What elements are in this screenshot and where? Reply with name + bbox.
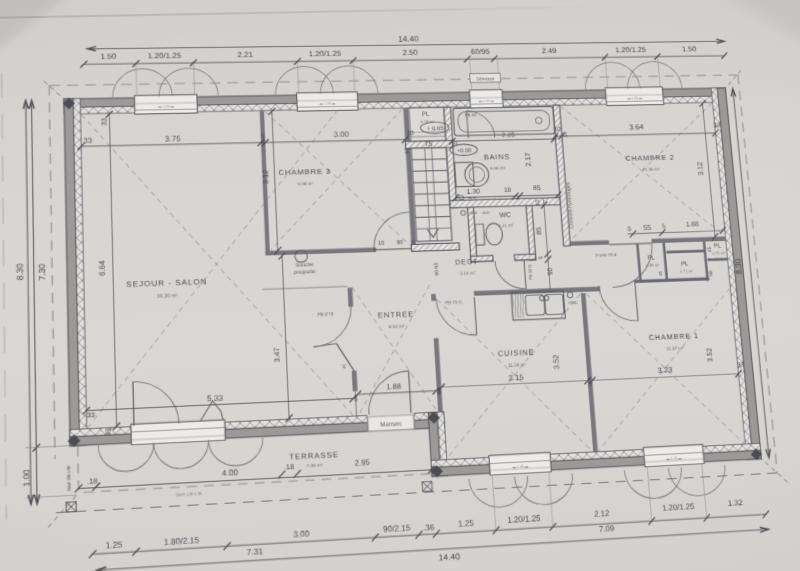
- svg-text:wch: wch: [482, 210, 490, 215]
- svg-text:10: 10: [504, 187, 512, 194]
- svg-text:8.30: 8.30: [14, 263, 25, 280]
- svg-text:2.12: 2.12: [594, 509, 610, 519]
- svg-text:▬ 1.05 ▬: ▬ 1.05 ▬: [479, 99, 495, 103]
- svg-text:SEJOUR - SALON: SEJOUR - SALON: [126, 277, 207, 289]
- svg-text:▬ 1.05 ▬: ▬ 1.05 ▬: [666, 456, 682, 461]
- svg-text:DEGT: DEGT: [455, 259, 478, 267]
- svg-text:10: 10: [378, 240, 385, 246]
- svg-text:40: 40: [658, 271, 663, 277]
- svg-text:7.30: 7.30: [36, 263, 47, 280]
- svg-text:10: 10: [411, 239, 417, 245]
- svg-text:45: 45: [342, 363, 347, 369]
- svg-text:60 63: 60 63: [434, 263, 441, 276]
- svg-text:33: 33: [83, 136, 92, 145]
- svg-text:3.00: 3.00: [333, 130, 349, 139]
- svg-text:PB 2'73: PB 2'73: [317, 311, 334, 317]
- svg-text:+0.00: +0.00: [457, 148, 472, 154]
- svg-text:5: 5: [539, 256, 545, 259]
- svg-text:PL: PL: [714, 243, 722, 250]
- svg-text:2.49: 2.49: [542, 47, 558, 55]
- svg-text:33: 33: [101, 118, 108, 126]
- svg-text:75: 75: [424, 139, 433, 148]
- svg-text:85: 85: [533, 185, 541, 192]
- svg-text:▬ 1.05 ▬: ▬ 1.05 ▬: [627, 96, 643, 100]
- svg-text:2.95: 2.95: [354, 457, 370, 467]
- svg-text:10: 10: [563, 131, 569, 137]
- svg-text:10: 10: [404, 148, 410, 154]
- svg-text:3.12: 3.12: [261, 170, 271, 184]
- svg-text:10: 10: [554, 126, 562, 133]
- svg-text:9.36 m²: 9.36 m²: [297, 181, 314, 186]
- svg-text:90/2.15: 90/2.15: [383, 523, 411, 534]
- svg-text:Mansec: Mansec: [380, 420, 402, 428]
- svg-text:5.33: 5.33: [207, 393, 224, 403]
- svg-text:11.37 m²: 11.37 m²: [666, 346, 684, 352]
- svg-text:55: 55: [643, 223, 652, 232]
- svg-text:2.21: 2.21: [237, 50, 253, 59]
- svg-text:1.20/1.25: 1.20/1.25: [615, 46, 647, 55]
- svg-text:5: 5: [354, 396, 358, 403]
- svg-text:ENTREE: ENTREE: [378, 310, 415, 320]
- svg-text:▬ 1.05 ▬: ▬ 1.05 ▬: [320, 102, 336, 106]
- svg-text:10: 10: [451, 140, 459, 147]
- svg-text:0.38 m²: 0.38 m²: [420, 119, 435, 124]
- svg-text:1.50: 1.50: [682, 45, 697, 53]
- svg-text:3.14 m²: 3.14 m²: [460, 271, 476, 276]
- svg-text:PB 63 G: PB 63 G: [527, 264, 533, 280]
- svg-text:0.49 m²: 0.49 m²: [646, 263, 661, 268]
- svg-text:2.25: 2.25: [501, 132, 515, 139]
- svg-text:33: 33: [105, 428, 113, 436]
- svg-text:1.32: 1.32: [727, 498, 743, 508]
- svg-text:.18: .18: [284, 464, 295, 472]
- svg-text:1.25: 1.25: [106, 540, 124, 551]
- svg-text:11.09 m²: 11.09 m²: [508, 362, 527, 368]
- svg-text:14.40: 14.40: [438, 551, 461, 563]
- svg-text:0.71 m²: 0.71 m²: [712, 250, 726, 255]
- svg-text:BAINS: BAINS: [484, 152, 511, 161]
- svg-text:1.68: 1.68: [686, 221, 700, 228]
- svg-text:1.00: 1.00: [22, 469, 32, 487]
- svg-text:3.52: 3.52: [551, 355, 561, 370]
- svg-text:7.31: 7.31: [247, 547, 264, 558]
- svg-text:PB 63: PB 63: [465, 113, 478, 118]
- svg-text:.18: .18: [87, 478, 98, 486]
- svg-text:+ 0.65: + 0.65: [427, 125, 445, 132]
- svg-text:Seuil 136 x 36: Seuil 136 x 36: [66, 466, 71, 490]
- svg-text:3.23: 3.23: [657, 365, 673, 374]
- svg-text:CHAMBRE 2: CHAMBRE 2: [625, 153, 675, 163]
- svg-text:33: 33: [713, 122, 721, 129]
- svg-text:poujoulat: poujoulat: [294, 269, 316, 276]
- svg-text:60/95: 60/95: [471, 48, 491, 57]
- svg-text:3.52: 3.52: [705, 348, 715, 363]
- svg-text:CUISINE: CUISINE: [498, 348, 535, 358]
- svg-text:90: 90: [547, 267, 554, 275]
- svg-text:36.36 m²: 36.36 m²: [157, 293, 178, 300]
- svg-text:8.30: 8.30: [733, 258, 744, 274]
- svg-text:Seuil: 136 x 36: Seuil: 136 x 36: [175, 492, 202, 498]
- svg-text:Détresse: Détresse: [476, 76, 495, 81]
- svg-text:4.00: 4.00: [222, 468, 239, 478]
- svg-text:3.75: 3.75: [165, 134, 182, 143]
- svg-text:▬ 1.05 ▬: ▬ 1.05 ▬: [158, 104, 175, 108]
- svg-text:1.25: 1.25: [458, 518, 475, 528]
- svg-text:TERRASSE: TERRASSE: [289, 450, 339, 462]
- svg-text:Cloisons hydrofuges: Cloisons hydrofuges: [566, 182, 575, 229]
- svg-text:2.17: 2.17: [523, 153, 533, 167]
- svg-text:1.20/1.25: 1.20/1.25: [309, 49, 342, 58]
- svg-text:1.20/1.25: 1.20/1.25: [507, 514, 541, 525]
- svg-text:3.64: 3.64: [629, 123, 645, 132]
- svg-text:▬ 1.05 ▬: ▬ 1.05 ▬: [512, 464, 529, 469]
- svg-text:5: 5: [438, 388, 442, 395]
- svg-text:3.12: 3.12: [695, 162, 705, 176]
- svg-text:50: 50: [708, 271, 714, 277]
- svg-text:10: 10: [534, 199, 541, 206]
- svg-text:10: 10: [407, 130, 415, 137]
- svg-text:CHAMBRE 3: CHAMBRE 3: [278, 167, 331, 177]
- svg-text:85: 85: [536, 227, 543, 235]
- svg-text:3.15: 3.15: [508, 373, 524, 383]
- svg-text:1.30: 1.30: [466, 189, 480, 196]
- svg-text:1.50: 1.50: [100, 52, 117, 61]
- svg-text:2.50: 2.50: [402, 48, 418, 57]
- svg-text:90: 90: [397, 240, 404, 246]
- svg-text:14.40: 14.40: [398, 34, 419, 43]
- svg-text:5: 5: [628, 226, 632, 233]
- svg-text:33: 33: [87, 412, 95, 420]
- svg-text:3.00: 3.00: [293, 529, 310, 539]
- svg-text:3.47: 3.47: [272, 347, 282, 362]
- svg-text:45: 45: [707, 246, 713, 252]
- svg-text:PB 73 G: PB 73 G: [445, 300, 463, 306]
- svg-text:1.20/1.25: 1.20/1.25: [148, 51, 182, 60]
- svg-text:WC: WC: [499, 212, 511, 219]
- svg-text:0.71 m²: 0.71 m²: [680, 269, 694, 274]
- svg-text:vmc: vmc: [469, 210, 478, 215]
- svg-text:33: 33: [737, 362, 745, 369]
- svg-text:5: 5: [261, 133, 265, 140]
- svg-text:1.20/1.25: 1.20/1.25: [662, 502, 695, 513]
- svg-text:7.35 m²: 7.35 m²: [306, 462, 323, 468]
- svg-text:6.66 m²: 6.66 m²: [490, 166, 506, 171]
- svg-text:6.02 m²: 6.02 m²: [388, 324, 405, 330]
- svg-text:.36: .36: [423, 523, 435, 533]
- svg-text:5: 5: [662, 223, 666, 230]
- svg-text:1.88: 1.88: [386, 382, 401, 392]
- svg-text:PL: PL: [681, 261, 689, 268]
- svg-text:CHAMBRE 1: CHAMBRE 1: [648, 331, 699, 342]
- svg-text:P pno 70 d: P pno 70 d: [595, 252, 616, 257]
- svg-text:11.36 m²: 11.36 m²: [642, 167, 660, 172]
- svg-text:6.64: 6.64: [97, 260, 107, 276]
- svg-text:PL: PL: [422, 111, 431, 118]
- svg-text:1.11 m²: 1.11 m²: [498, 223, 514, 228]
- svg-text:1.80/2.15: 1.80/2.15: [164, 535, 200, 547]
- svg-text:PL: PL: [647, 255, 655, 262]
- svg-text:7.09: 7.09: [599, 524, 616, 534]
